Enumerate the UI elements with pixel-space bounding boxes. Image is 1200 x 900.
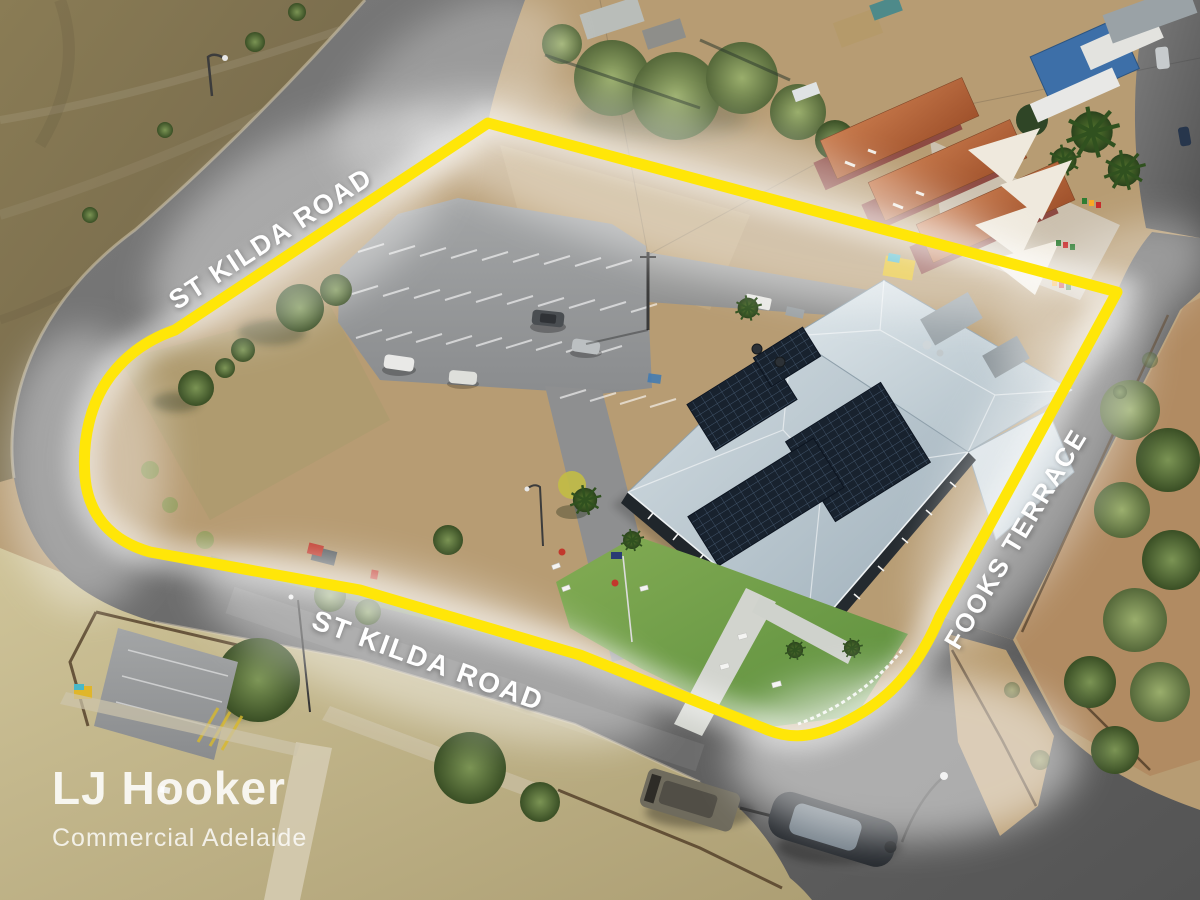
chimney-flue <box>752 344 762 354</box>
australian-flag <box>611 552 622 559</box>
gum-tree <box>1136 428 1200 492</box>
bin <box>1056 240 1061 246</box>
tree <box>178 370 214 406</box>
tree <box>82 207 98 223</box>
lamp-head <box>525 487 530 492</box>
grey-van <box>1155 46 1170 69</box>
disabled-bay-marking <box>647 373 661 384</box>
gum-tree <box>1142 530 1200 590</box>
red-umbrella <box>559 549 566 556</box>
bin <box>1096 202 1101 208</box>
tree <box>231 338 255 362</box>
gum-tree <box>706 42 778 114</box>
chimney-flue <box>775 357 785 367</box>
gum-tree <box>1094 482 1150 538</box>
tree <box>157 122 173 138</box>
agency-watermark: LJ Hooker Commercial Adelaide <box>52 765 307 853</box>
grass-tuft <box>162 497 178 513</box>
agency-division: Commercial Adelaide <box>52 824 307 853</box>
tree <box>288 3 306 21</box>
gum-tree <box>1091 726 1139 774</box>
gum-tree <box>1130 662 1190 722</box>
gum-tree <box>1103 588 1167 652</box>
tree <box>245 32 265 52</box>
gum-tree <box>1064 656 1116 708</box>
yellow-box-lid <box>74 684 84 690</box>
tree <box>520 782 560 822</box>
bin <box>1063 242 1068 248</box>
tree <box>434 732 506 804</box>
agency-name: LJ Hooker <box>52 765 307 811</box>
bin <box>1089 200 1094 206</box>
aerial-property-photo: ST KILDA ROAD ST KILDA ROAD FOOKS TERRAC… <box>0 0 1200 900</box>
tree <box>433 525 463 555</box>
grey-suv-roof <box>540 313 557 324</box>
bin <box>1082 198 1087 204</box>
rooftop-unit <box>923 341 932 350</box>
white-car <box>448 370 477 385</box>
lamp-head <box>222 55 228 61</box>
red-umbrella <box>612 580 619 587</box>
rooftop-unit <box>937 350 944 357</box>
tree <box>215 358 235 378</box>
